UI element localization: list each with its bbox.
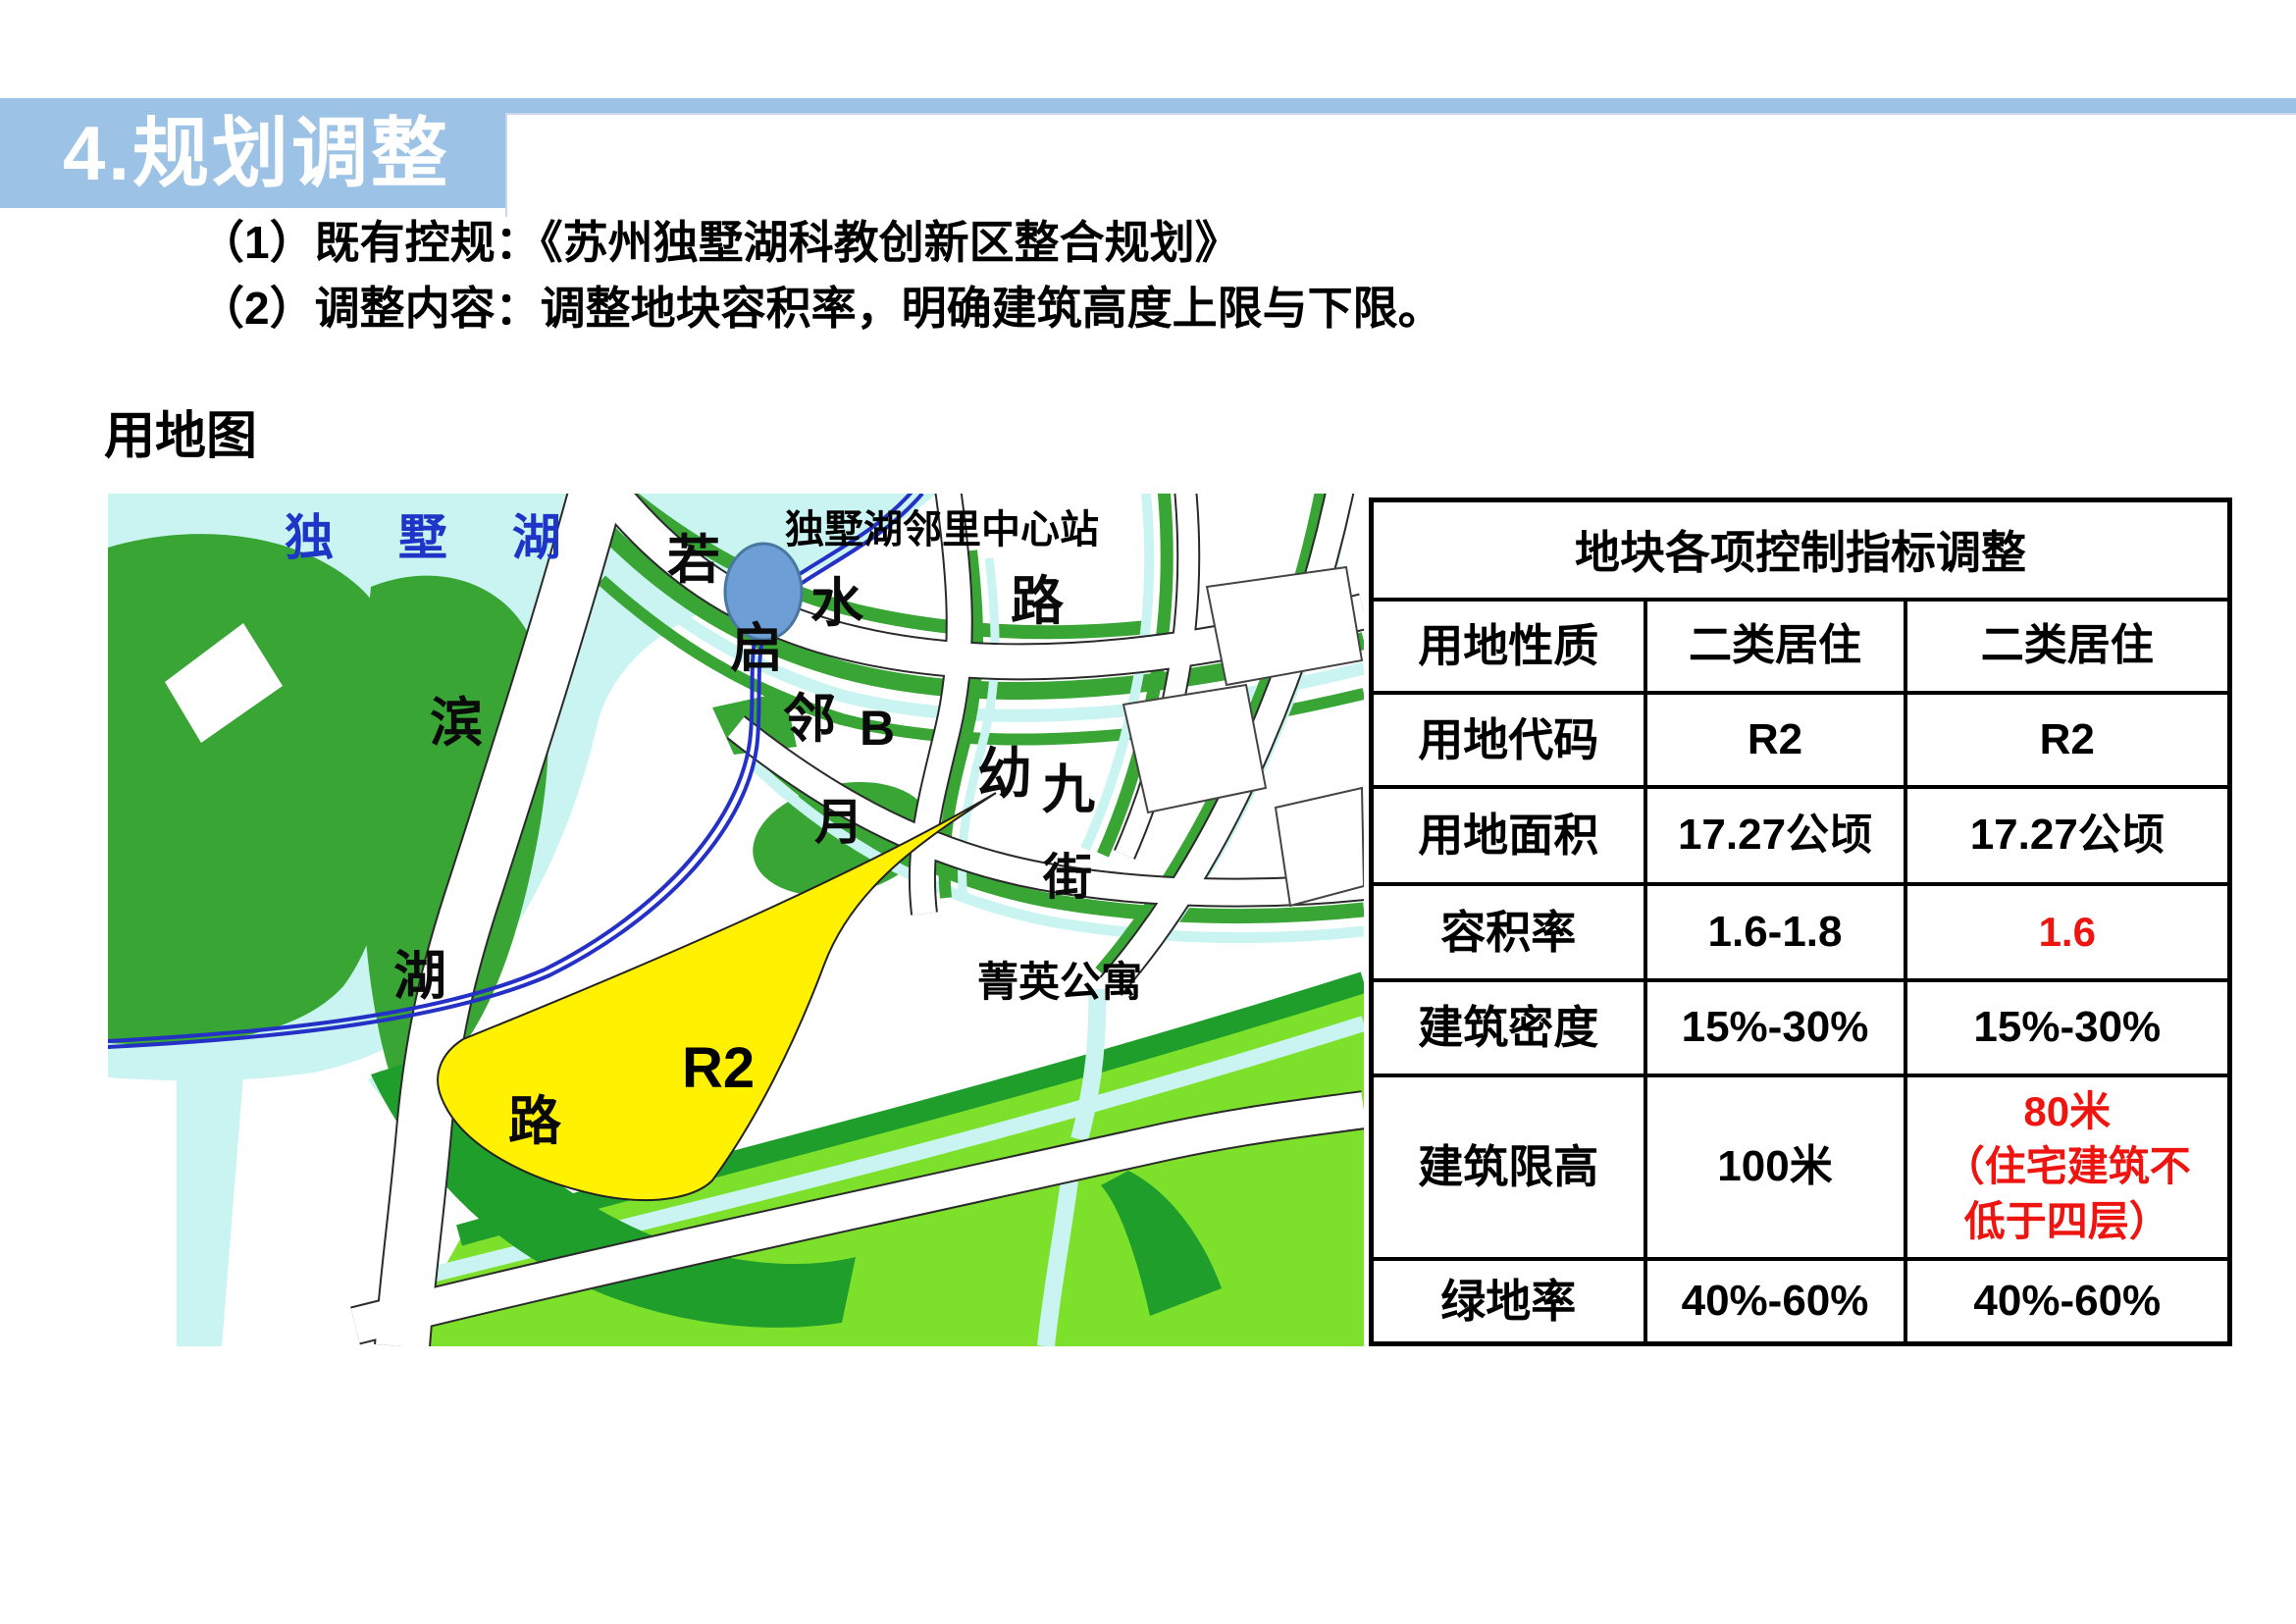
road-char-ruo: 若 [667,531,720,590]
road-char-shui: 水 [810,574,864,633]
cell-label: 用地面积 [1372,787,1645,884]
bullet-point-2: （2）调整内容：调整地块容积率，明确建筑高度上限与下限。 [199,276,1443,341]
cell-label: 容积率 [1372,884,1645,980]
land-use-map: 独 墅 湖 独墅湖邻里中心站 若 水 路 启 邻 B 幼 九 月 街 滨 湖 路… [108,494,1364,1346]
plot-code-label: R2 [682,1036,755,1100]
indicator-table: 地块各项控制指标调整 用地性质二类居住二类居住用地代码R2R2用地面积17.27… [1369,498,2232,1346]
cell-label: 用地代码 [1372,693,1645,787]
cell-before: 100米 [1645,1075,1905,1259]
station-label: 独墅湖邻里中心站 [785,508,1099,551]
road-char-yue: 月 [814,795,863,850]
apartment-label: 菁英公寓 [977,959,1142,1005]
table-row: 建筑密度15%-30%15%-30% [1372,980,2230,1075]
table-row: 绿地率40%-60%40%-60% [1372,1259,2230,1344]
cell-after: 15%-30% [1905,980,2230,1075]
cell-after: 40%-60% [1905,1259,2230,1344]
road-char-lu2: 路 [508,1092,562,1151]
cell-label: 建筑密度 [1372,980,1645,1075]
road-char-hu: 湖 [393,947,446,1006]
cell-label: 绿地率 [1372,1259,1645,1344]
lake-label: 独 墅 湖 [285,510,587,565]
table-row: 用地代码R2R2 [1372,693,2230,787]
table-title: 地块各项控制指标调整 [1372,500,2230,600]
bullet-point-1: （1）既有控规：《苏州独墅湖科教创新区整合规划》 [199,210,1443,276]
cell-after: R2 [1905,693,2230,787]
bullet-points: （1）既有控规：《苏州独墅湖科教创新区整合规划》 （2）调整内容：调整地块容积率… [199,210,1443,341]
cell-before: 1.6-1.8 [1645,884,1905,980]
road-char-jiu: 九 [1042,760,1095,819]
map-caption: 用地图 [104,394,257,468]
cell-after: 二类居住 [1905,600,2230,693]
table-row: 建筑限高100米80米 （住宅建筑不 低于四层） [1372,1075,2230,1259]
cell-before: 40%-60% [1645,1259,1905,1344]
section-title: 4.规划调整 [63,98,450,208]
cell-before: 17.27公顷 [1645,787,1905,884]
road-char-you: 幼 [977,743,1032,805]
map-svg: 独 墅 湖 独墅湖邻里中心站 若 水 路 启 邻 B 幼 九 月 街 滨 湖 路… [108,494,1364,1346]
road-char-qi: 启 [730,619,783,678]
table-row: 用地性质二类居住二类居住 [1372,600,2230,693]
road-char-jie: 街 [1042,850,1092,905]
cell-after: 80米 （住宅建筑不 低于四层） [1905,1075,2230,1259]
cell-before: 15%-30% [1645,980,1905,1075]
table-title-row: 地块各项控制指标调整 [1372,500,2230,600]
road-char-lin: 邻 [783,690,836,749]
indicator-table-body: 用地性质二类居住二类居住用地代码R2R2用地面积17.27公顷17.27公顷容积… [1372,600,2230,1344]
road-char-bin: 滨 [430,694,483,753]
cell-after: 1.6 [1905,884,2230,980]
road-char-lu1: 路 [1011,572,1065,631]
banner-cover [505,113,2296,217]
cell-label: 用地性质 [1372,600,1645,693]
cell-label: 建筑限高 [1372,1075,1645,1259]
cell-after: 17.27公顷 [1905,787,2230,884]
table-row: 容积率1.6-1.81.6 [1372,884,2230,980]
cell-before: R2 [1645,693,1905,787]
cell-before: 二类居住 [1645,600,1905,693]
slide: 4.规划调整 （1）既有控规：《苏州独墅湖科教创新区整合规划》 （2）调整内容：… [0,0,2296,1624]
road-char-B: B [860,701,895,756]
table-row: 用地面积17.27公顷17.27公顷 [1372,787,2230,884]
